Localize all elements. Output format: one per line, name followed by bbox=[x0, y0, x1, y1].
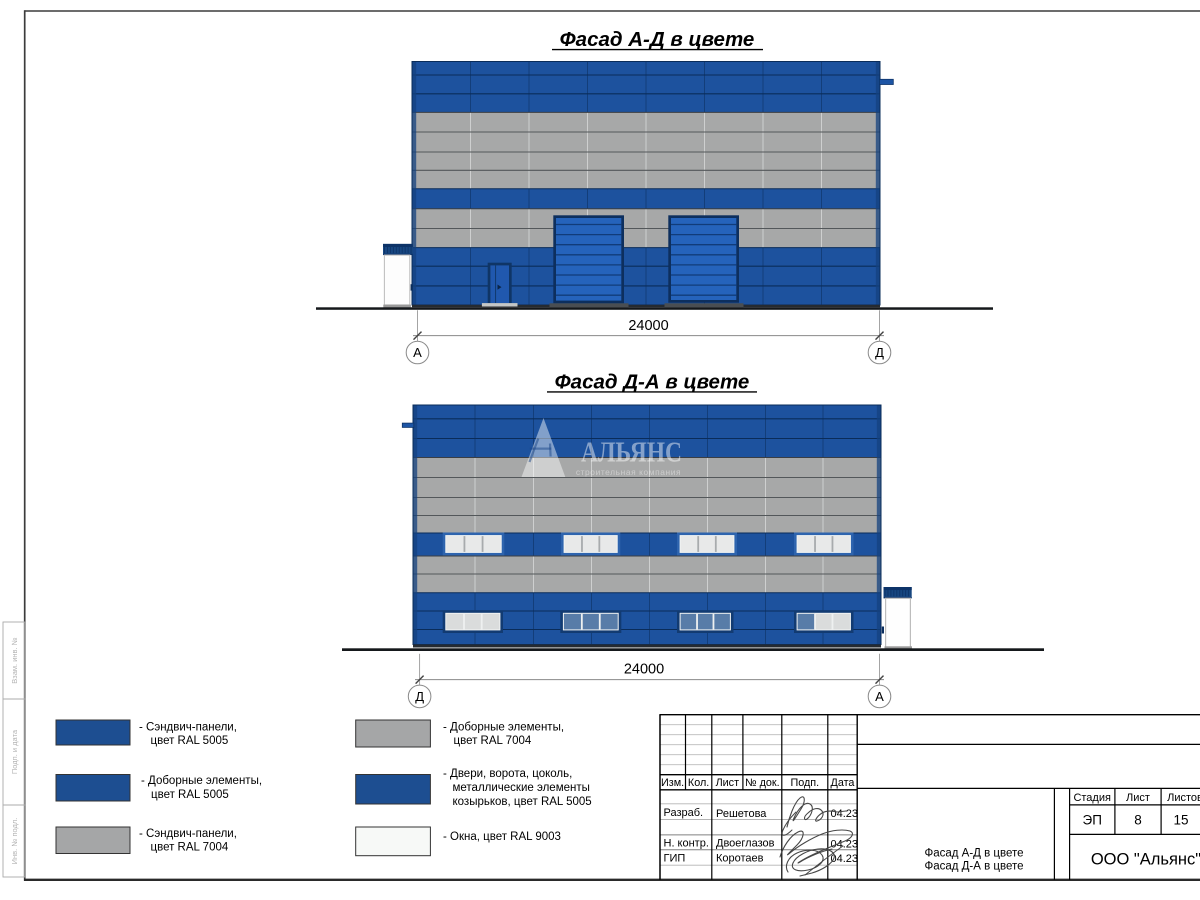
svg-text:- Доборные элементы,: - Доборные элементы, bbox=[141, 775, 262, 787]
svg-text:Изм.: Изм. bbox=[661, 777, 684, 789]
svg-text:Подп. и дата: Подп. и дата bbox=[10, 729, 19, 774]
svg-text:Кол.: Кол. bbox=[688, 777, 709, 789]
svg-text:Листов: Листов bbox=[1167, 792, 1200, 804]
svg-text:козырьков, цвет RAL 5005: козырьков, цвет RAL 5005 bbox=[453, 796, 592, 808]
svg-text:- Сэндвич-панели,: - Сэндвич-панели, bbox=[139, 722, 237, 734]
svg-text:15: 15 bbox=[1173, 813, 1188, 828]
svg-text:металлические элементы: металлические элементы bbox=[453, 782, 590, 794]
svg-text:Д: Д bbox=[415, 689, 424, 704]
svg-text:Взам. инв. №: Взам. инв. № bbox=[10, 637, 19, 683]
svg-text:Лист: Лист bbox=[1126, 792, 1150, 804]
svg-text:Стадия: Стадия bbox=[1073, 792, 1111, 804]
svg-text:Решетова: Решетова bbox=[716, 808, 767, 820]
svg-text:Н. контр.: Н. контр. bbox=[664, 838, 709, 850]
svg-text:ООО "Альянс": ООО "Альянс" bbox=[1091, 851, 1200, 869]
svg-text:- Двери, ворота, цоколь,: - Двери, ворота, цоколь, bbox=[443, 768, 572, 780]
svg-text:Д: Д bbox=[875, 345, 884, 360]
svg-text:- Сэндвич-панели,: - Сэндвич-панели, bbox=[139, 828, 237, 840]
svg-text:цвет RAL 7004: цвет RAL 7004 bbox=[454, 735, 532, 747]
svg-text:строительная компания: строительная компания bbox=[576, 467, 681, 477]
svg-text:04.23: 04.23 bbox=[831, 839, 859, 851]
svg-text:№ док.: № док. bbox=[745, 777, 780, 789]
svg-text:цвет RAL 7004: цвет RAL 7004 bbox=[151, 842, 229, 854]
svg-text:Дата: Дата bbox=[831, 777, 855, 789]
svg-text:АЛЬЯНС: АЛЬЯНС bbox=[581, 438, 682, 469]
svg-text:цвет RAL 5005: цвет RAL 5005 bbox=[151, 789, 229, 801]
svg-text:Фасад Д-А в цвете: Фасад Д-А в цвете bbox=[555, 370, 750, 393]
svg-text:А: А bbox=[875, 689, 884, 704]
svg-text:Лист: Лист bbox=[716, 777, 740, 789]
svg-text:Разраб.: Разраб. bbox=[664, 807, 704, 819]
svg-text:Фасад А-Д в цвете: Фасад А-Д в цвете bbox=[560, 28, 755, 51]
svg-text:- Доборные элементы,: - Доборные элементы, bbox=[443, 722, 564, 734]
svg-text:8: 8 bbox=[1134, 813, 1142, 828]
svg-text:24000: 24000 bbox=[624, 662, 664, 678]
svg-text:Подп.: Подп. bbox=[790, 777, 819, 789]
svg-text:Фасад Д-А в цвете: Фасад Д-А в цвете bbox=[924, 861, 1023, 873]
svg-text:ЭП: ЭП bbox=[1082, 813, 1101, 828]
svg-text:24000: 24000 bbox=[628, 318, 668, 334]
svg-text:Коротаев: Коротаев bbox=[716, 853, 764, 865]
svg-text:А: А bbox=[413, 345, 422, 360]
svg-text:Двоеглазов: Двоеглазов bbox=[716, 838, 775, 850]
svg-text:Фасад А-Д в цвете: Фасад А-Д в цвете bbox=[924, 847, 1023, 859]
svg-text:- Окна, цвет RAL 9003: - Окна, цвет RAL 9003 bbox=[443, 831, 561, 843]
svg-text:цвет RAL 5005: цвет RAL 5005 bbox=[151, 735, 229, 747]
svg-text:ГИП: ГИП bbox=[664, 853, 686, 865]
svg-text:04.23: 04.23 bbox=[831, 808, 859, 820]
svg-text:Инв. № подл.: Инв. № подл. bbox=[10, 818, 19, 865]
